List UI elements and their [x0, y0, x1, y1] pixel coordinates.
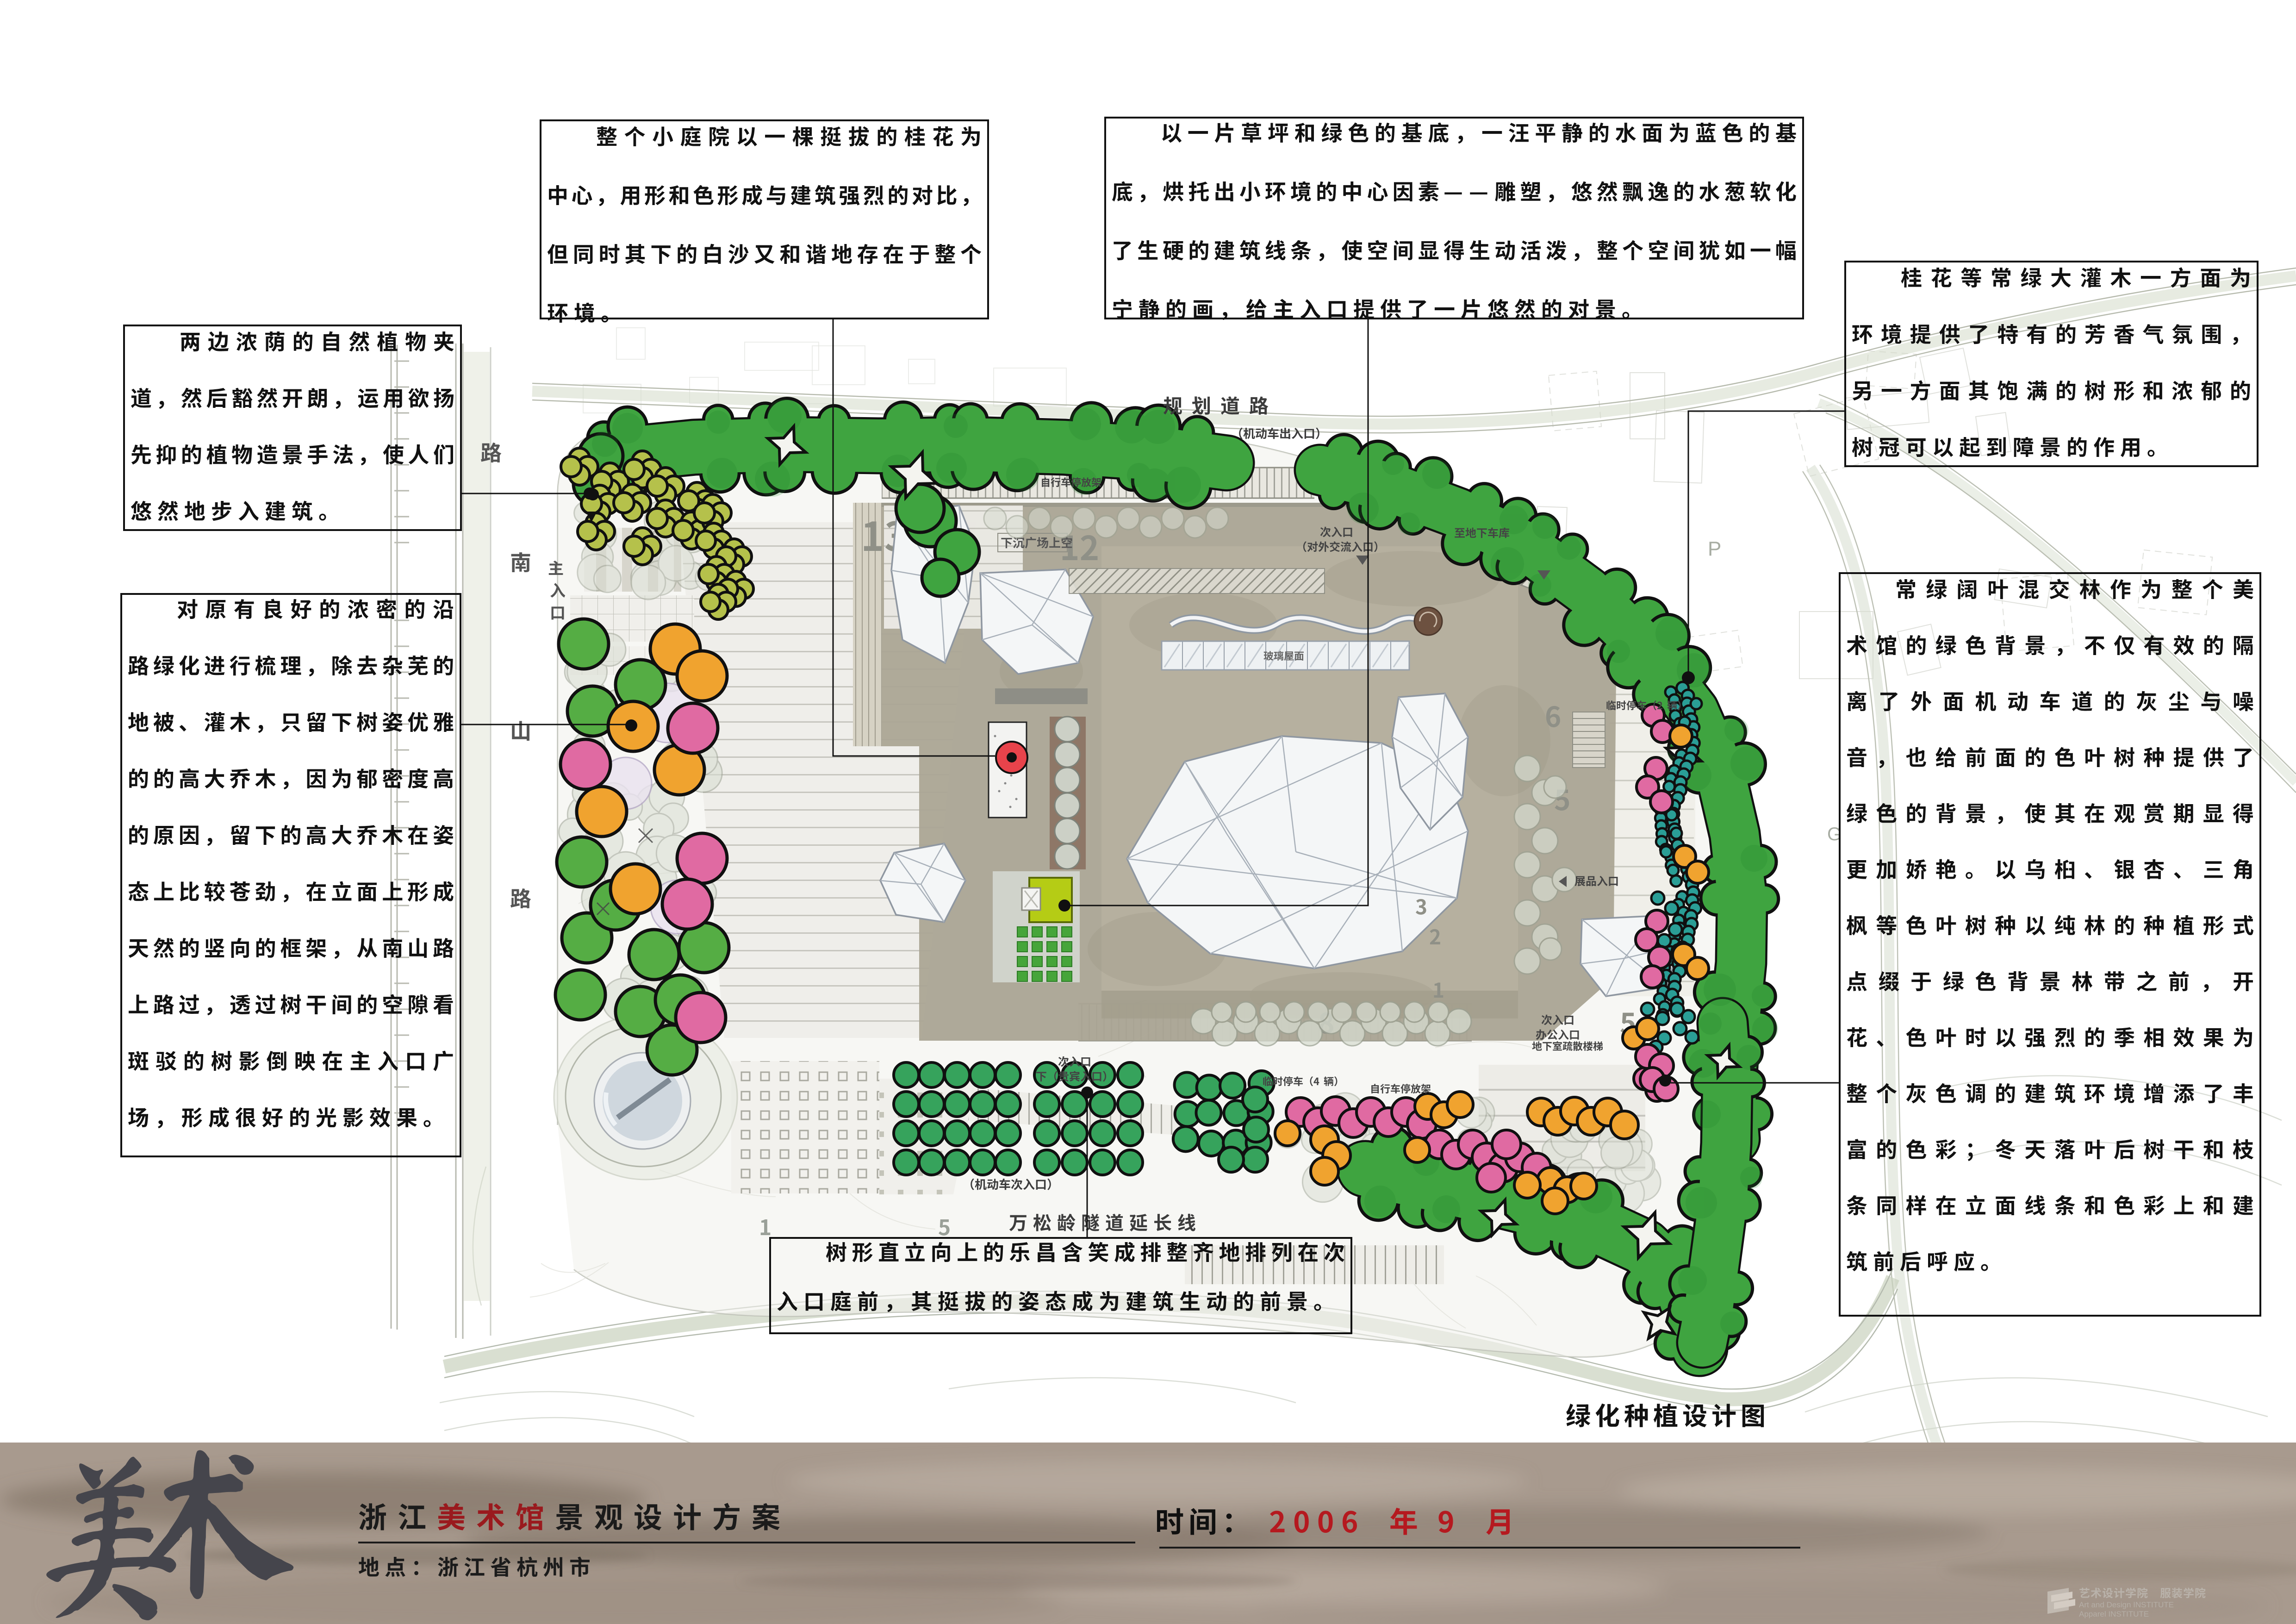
svg-text:Art and Design INSTITUTE: Art and Design INSTITUTE [2079, 1600, 2174, 1609]
svg-text:P: P [1708, 537, 1721, 560]
svg-text:Apparel INSTITUTE: Apparel INSTITUTE [2079, 1610, 2149, 1618]
